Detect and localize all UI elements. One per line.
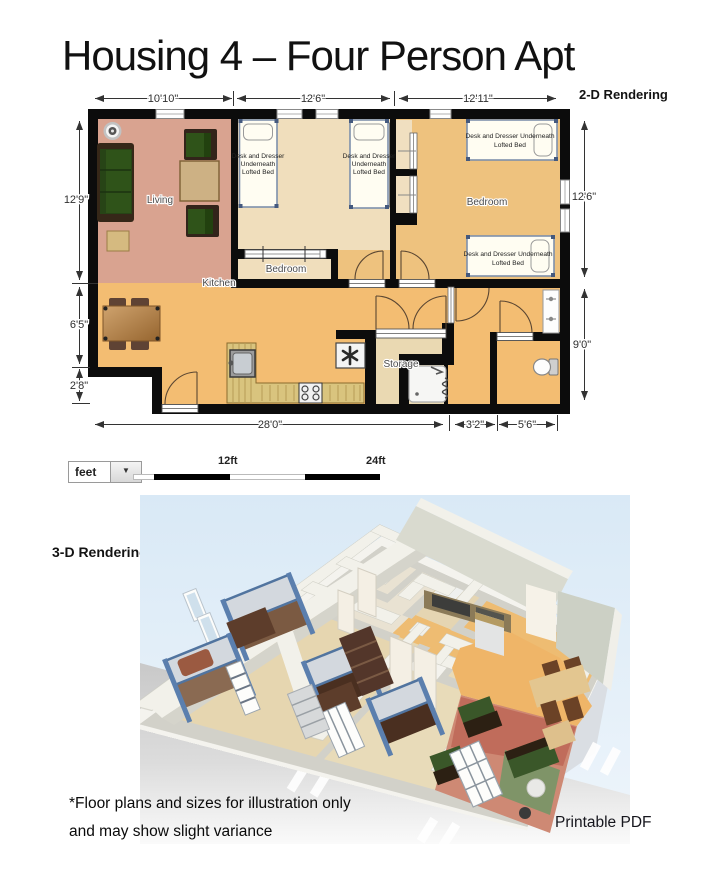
svg-text:Bedroom: Bedroom: [467, 197, 508, 208]
svg-text:Living: Living: [147, 195, 173, 206]
svg-text:Lofted Bed: Lofted Bed: [492, 260, 524, 267]
svg-text:Storage: Storage: [383, 359, 418, 370]
svg-text:12'9": 12'9": [64, 194, 88, 206]
svg-text:Desk and Dresser Underneath: Desk and Dresser Underneath: [463, 251, 552, 258]
svg-text:12'6": 12'6": [572, 191, 596, 203]
svg-text:6'5": 6'5": [70, 319, 88, 331]
svg-text:Lofted Bed: Lofted Bed: [494, 142, 526, 149]
svg-text:Desk and Dresser Underneath: Desk and Dresser Underneath: [465, 133, 554, 140]
svg-text:Lofted Bed: Lofted Bed: [242, 169, 274, 176]
svg-text:5'6": 5'6": [518, 419, 536, 431]
svg-text:9'0": 9'0": [573, 339, 591, 351]
svg-text:28'0": 28'0": [258, 419, 282, 431]
svg-text:12'11": 12'11": [463, 93, 493, 105]
svg-text:12'6": 12'6": [301, 93, 325, 105]
svg-text:Underneath: Underneath: [241, 161, 276, 168]
svg-text:3'2": 3'2": [466, 419, 484, 431]
svg-text:Bedroom: Bedroom: [266, 264, 307, 275]
svg-text:Desk and Dresser: Desk and Dresser: [232, 153, 286, 160]
svg-text:Underneath: Underneath: [352, 161, 387, 168]
svg-text:Lofted Bed: Lofted Bed: [353, 169, 385, 176]
svg-text:2'8": 2'8": [70, 380, 88, 392]
svg-text:10'10": 10'10": [148, 93, 179, 105]
svg-text:Kitchen: Kitchen: [202, 278, 235, 289]
svg-text:Desk and Dresser: Desk and Dresser: [343, 153, 397, 160]
